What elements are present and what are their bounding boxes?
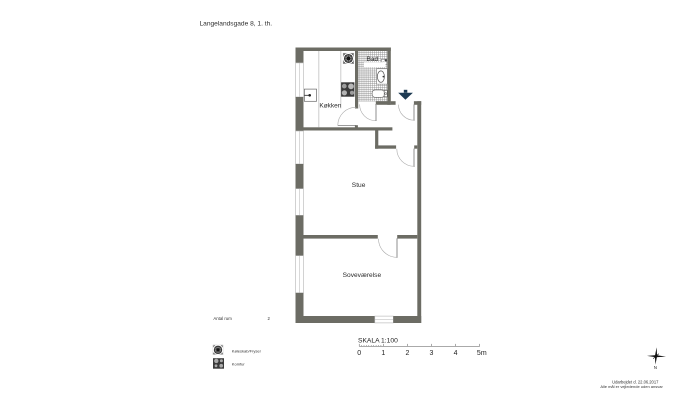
svg-text:1: 1 xyxy=(381,350,385,357)
svg-text:3: 3 xyxy=(430,350,434,357)
svg-text:Alle mål er vejledende uden an: Alle mål er vejledende uden ansvar xyxy=(600,384,663,389)
svg-text:N: N xyxy=(654,365,657,370)
svg-text:4: 4 xyxy=(454,350,458,357)
svg-text:Soveværelse: Soveværelse xyxy=(343,272,382,279)
svg-text:5m: 5m xyxy=(477,350,487,357)
svg-text:Køkken: Køkken xyxy=(319,103,341,110)
svg-text:SKALA 1:100: SKALA 1:100 xyxy=(358,338,398,345)
svg-text:Antal rum: Antal rum xyxy=(213,316,232,321)
svg-text:2: 2 xyxy=(405,350,409,357)
svg-text:Langelandsgade 8, 1. th.: Langelandsgade 8, 1. th. xyxy=(200,20,273,27)
svg-text:Bad: Bad xyxy=(367,56,379,63)
svg-text:Komfur: Komfur xyxy=(232,362,246,367)
svg-text:0: 0 xyxy=(357,350,361,357)
svg-text:Stue: Stue xyxy=(352,182,366,189)
svg-text:Køleskab/Fryser: Køleskab/Fryser xyxy=(232,348,262,353)
